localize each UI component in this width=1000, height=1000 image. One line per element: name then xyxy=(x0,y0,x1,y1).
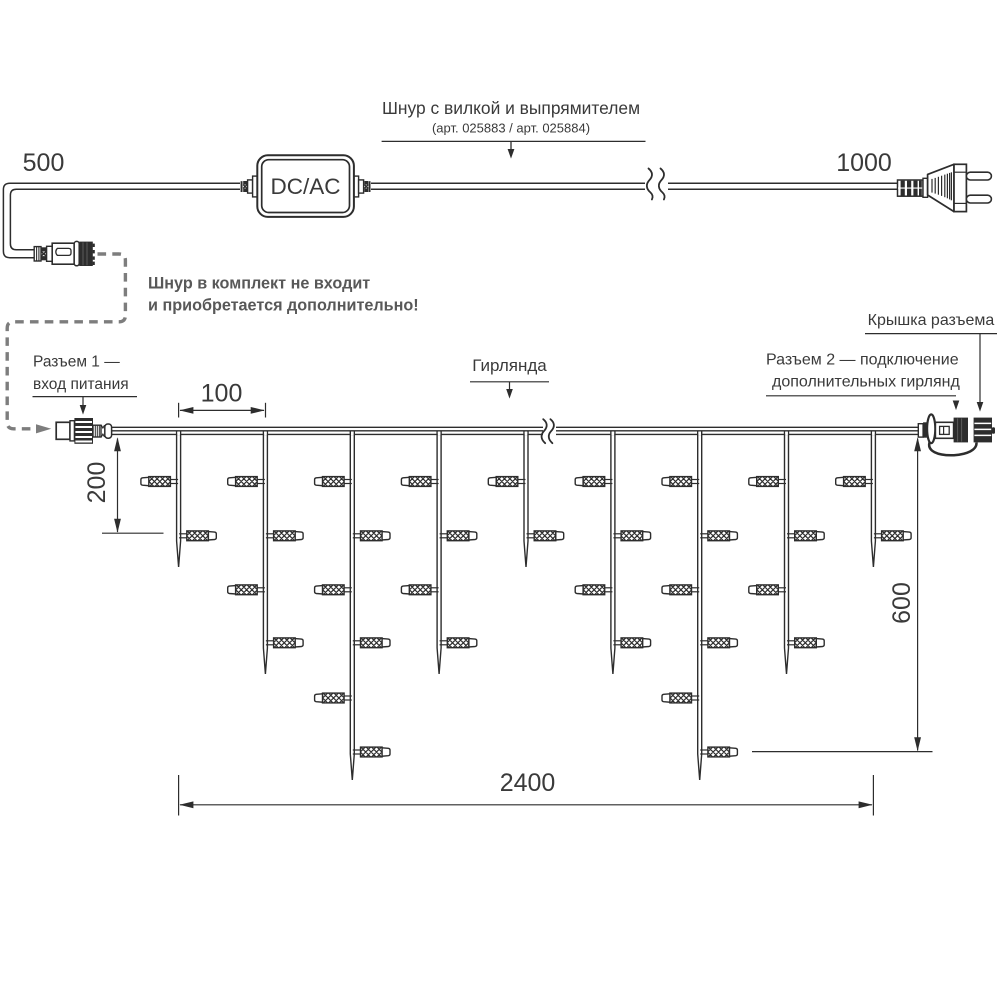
svg-text:Крышка разъема: Крышка разъема xyxy=(868,312,995,329)
svg-text:200: 200 xyxy=(83,462,111,504)
svg-text:(арт. 025883 / арт. 025884): (арт. 025883 / арт. 025884) xyxy=(432,121,590,136)
svg-text:600: 600 xyxy=(888,582,916,624)
svg-text:Разъем 1 —: Разъем 1 — xyxy=(33,354,120,371)
svg-text:100: 100 xyxy=(201,380,243,408)
svg-text:1000: 1000 xyxy=(836,149,892,177)
svg-text:2400: 2400 xyxy=(500,769,556,797)
svg-text:Разъем 2 — подключение: Разъем 2 — подключение xyxy=(766,352,959,369)
svg-text:500: 500 xyxy=(23,149,65,177)
svg-text:вход питания: вход питания xyxy=(33,376,129,393)
svg-text:дополнительных гирлянд: дополнительных гирлянд xyxy=(772,374,960,391)
svg-text:DC/AC: DC/AC xyxy=(270,174,340,199)
svg-text:Шнур с вилкой и выпрямителем: Шнур с вилкой и выпрямителем xyxy=(382,98,640,118)
svg-text:Шнур в комплект не входит: Шнур в комплект не входит xyxy=(148,275,370,293)
svg-text:и приобретается дополнительно!: и приобретается дополнительно! xyxy=(148,297,419,315)
svg-text:Гирлянда: Гирлянда xyxy=(472,356,547,375)
